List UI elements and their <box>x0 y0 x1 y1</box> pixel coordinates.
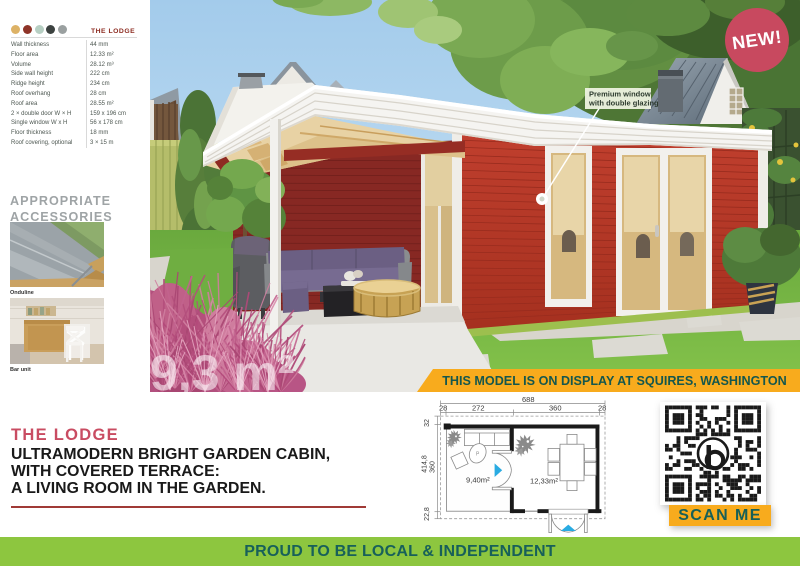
svg-text:9,40m²: 9,40m² <box>466 476 490 485</box>
svg-text:688: 688 <box>522 395 535 404</box>
svg-text:Premium window: Premium window <box>589 90 651 99</box>
svg-text:32: 32 <box>424 419 431 427</box>
svg-text:22,8: 22,8 <box>424 507 431 521</box>
svg-text:12,33m²: 12,33m² <box>530 477 558 486</box>
svg-text:with double glazing: with double glazing <box>588 99 659 108</box>
svg-text:360: 360 <box>430 461 437 473</box>
svg-text:414,8: 414,8 <box>422 455 429 473</box>
svg-text:272: 272 <box>472 404 485 413</box>
svg-text:9,3 m²: 9,3 m² <box>150 345 295 392</box>
svg-text:360: 360 <box>549 404 562 413</box>
